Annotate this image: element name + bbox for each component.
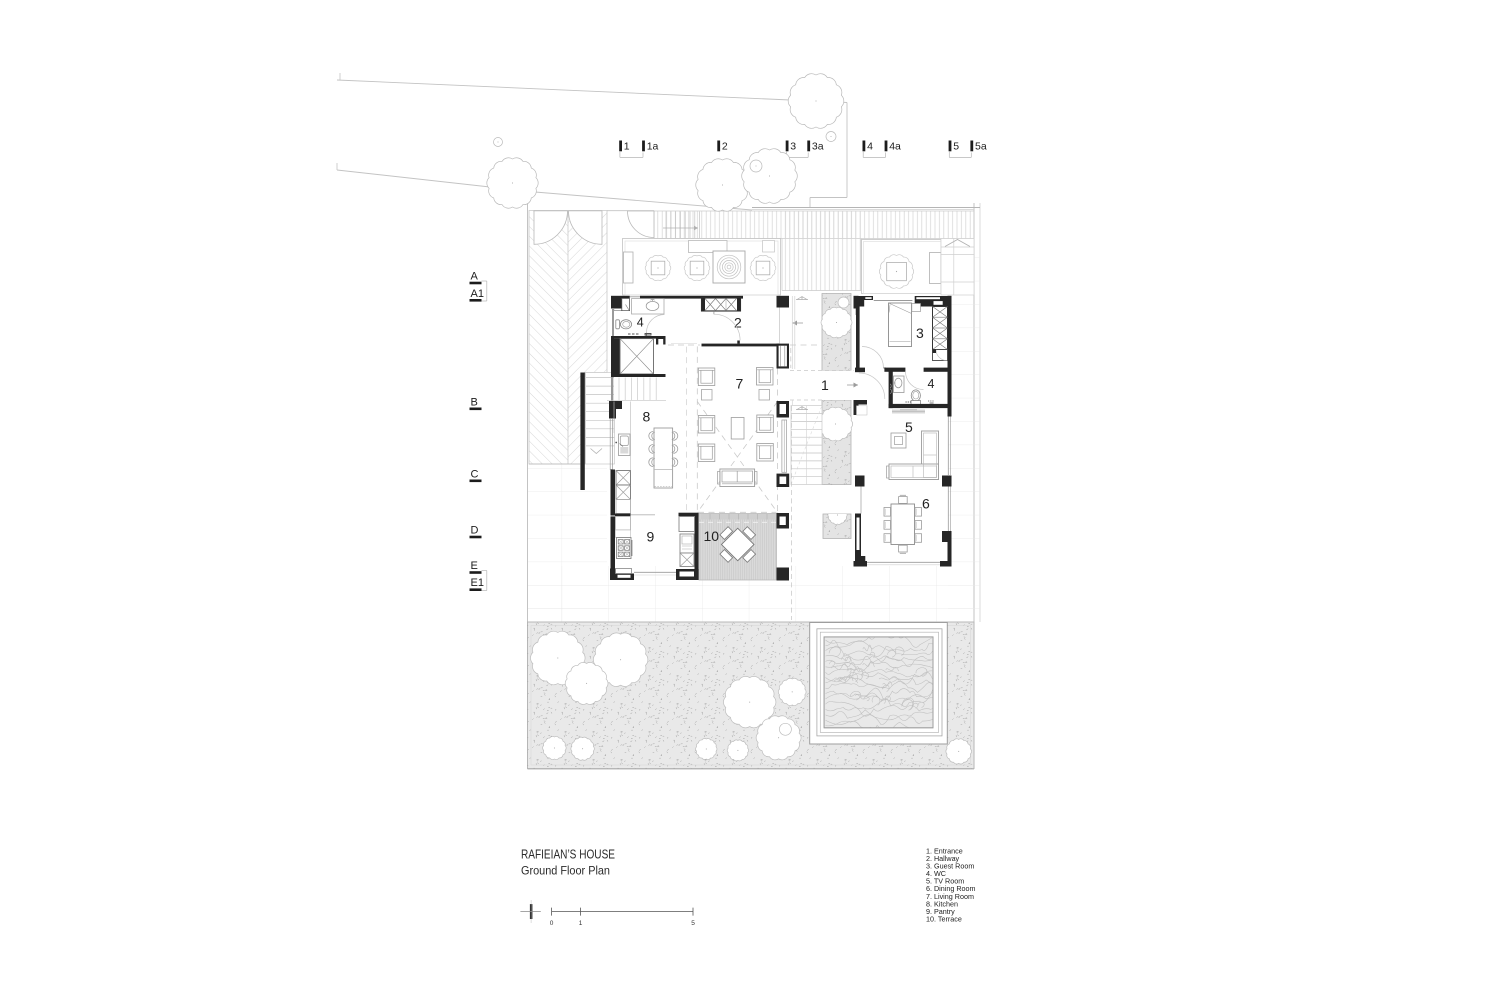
svg-text:2: 2 xyxy=(734,315,742,331)
svg-text:1: 1 xyxy=(821,377,829,393)
svg-text:B: B xyxy=(471,396,478,408)
svg-text:6: 6 xyxy=(922,496,930,512)
svg-text:3: 3 xyxy=(916,325,924,341)
svg-text:A: A xyxy=(471,271,479,283)
svg-text:10. Terrace: 10. Terrace xyxy=(926,915,962,924)
svg-text:5: 5 xyxy=(953,140,959,152)
svg-text:8: 8 xyxy=(643,409,651,425)
svg-text:0: 0 xyxy=(550,920,554,927)
svg-text:E1: E1 xyxy=(471,577,484,589)
svg-text:1a: 1a xyxy=(647,140,659,152)
svg-text:10: 10 xyxy=(704,528,720,544)
svg-text:D: D xyxy=(471,525,479,537)
svg-text:4: 4 xyxy=(928,377,935,391)
svg-text:1: 1 xyxy=(579,920,583,927)
svg-text:2: 2 xyxy=(722,140,728,152)
svg-text:4: 4 xyxy=(637,316,644,330)
svg-text:5a: 5a xyxy=(975,140,987,152)
svg-text:4a: 4a xyxy=(889,140,901,152)
svg-text:9: 9 xyxy=(647,529,655,545)
svg-text:3: 3 xyxy=(790,140,796,152)
svg-text:4: 4 xyxy=(867,140,873,152)
svg-text:5: 5 xyxy=(691,920,695,927)
svg-text:3a: 3a xyxy=(812,140,824,152)
svg-text:7: 7 xyxy=(736,376,744,392)
svg-text:E: E xyxy=(471,560,478,572)
svg-text:RAFIEIAN’S HOUSE: RAFIEIAN’S HOUSE xyxy=(521,847,615,862)
svg-text:Ground Floor Plan: Ground Floor Plan xyxy=(521,864,610,878)
svg-text:1: 1 xyxy=(624,140,630,152)
svg-text:C: C xyxy=(471,468,479,480)
svg-text:A1: A1 xyxy=(471,288,484,300)
